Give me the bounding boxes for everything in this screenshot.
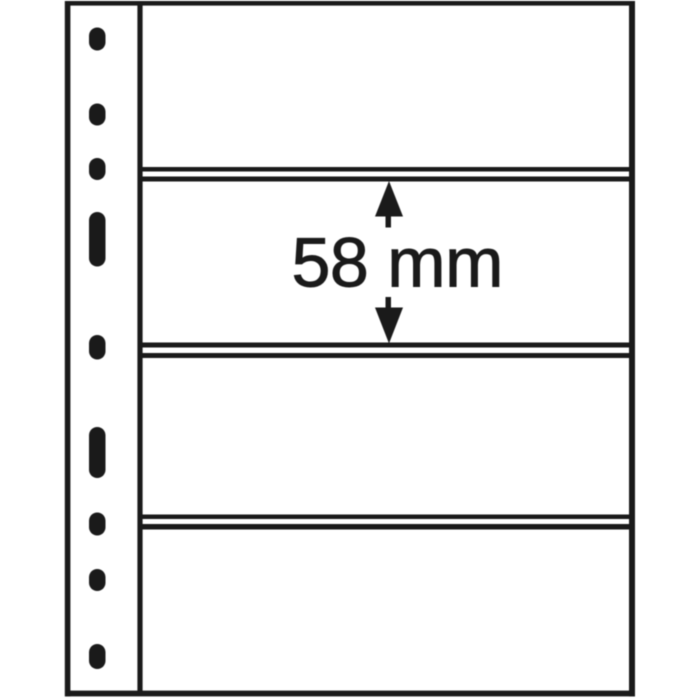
svg-text:58 mm: 58 mm [292,224,503,302]
